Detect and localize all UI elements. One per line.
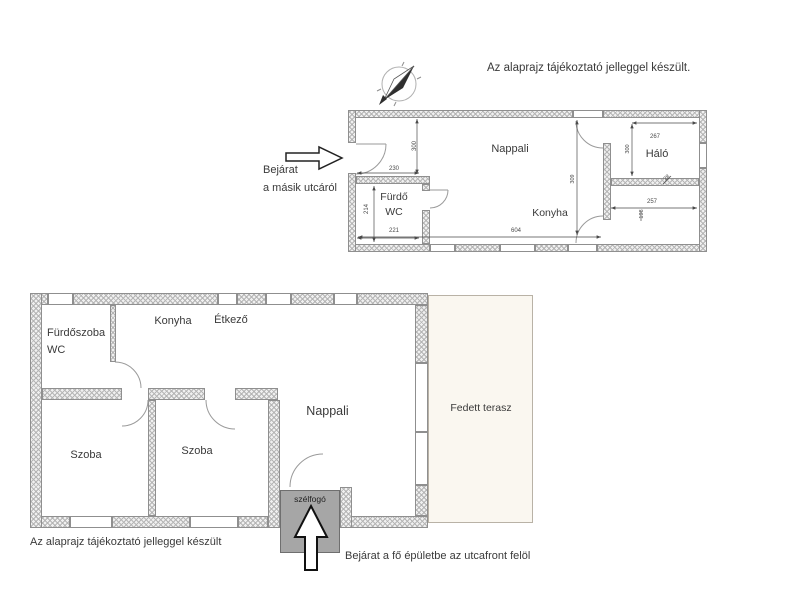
door-arc — [122, 400, 148, 426]
door-arc — [206, 400, 235, 429]
floor-plan-page: Nappali Konyha Fürdő WC Háló 230 300 221… — [0, 0, 800, 598]
door-arc — [115, 362, 141, 388]
plan-linework — [0, 0, 800, 598]
door-arcs — [115, 121, 603, 487]
door-arc — [430, 190, 448, 208]
entrance-arrow-up-icon — [295, 506, 327, 570]
door-arc — [576, 216, 603, 243]
north-compass-icon — [377, 62, 421, 106]
door-arc — [576, 121, 603, 148]
dimension-tick — [663, 176, 671, 184]
dimension-lines — [357, 119, 697, 242]
entrance-arrow-right-icon — [286, 147, 342, 169]
door-arc — [290, 454, 323, 487]
door-arc — [356, 144, 386, 174]
